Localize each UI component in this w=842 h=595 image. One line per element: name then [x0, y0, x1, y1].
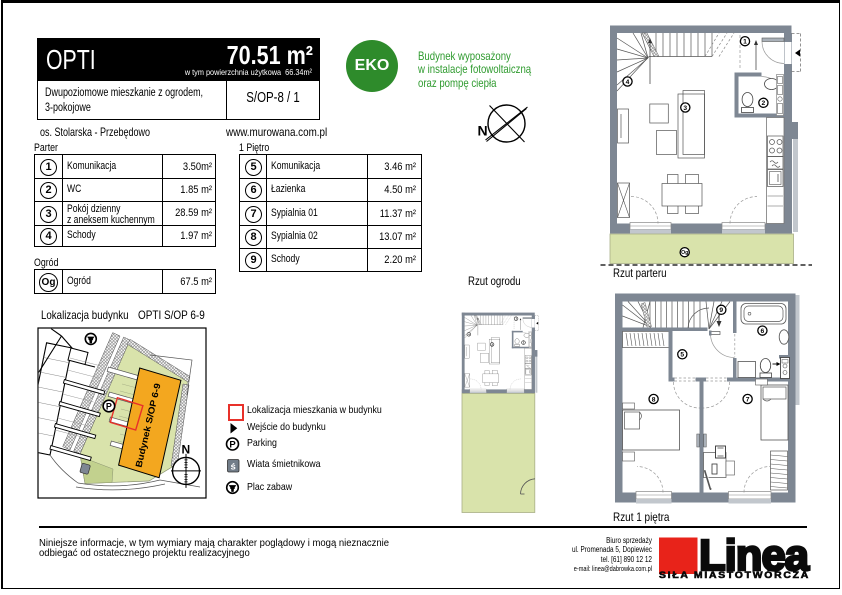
svg-text:9: 9: [719, 307, 723, 314]
svg-text:6: 6: [761, 328, 765, 335]
svg-text:8: 8: [652, 396, 656, 403]
svg-text:Og: Og: [681, 250, 688, 256]
svg-text:P: P: [106, 402, 112, 412]
svg-text:ś: ś: [231, 461, 236, 472]
svg-text:P: P: [229, 440, 236, 451]
svg-text:N: N: [182, 442, 191, 456]
svg-text:5: 5: [680, 352, 684, 359]
svg-text:SIŁA MIASTOTWÓRCZA: SIŁA MIASTOTWÓRCZA: [659, 569, 810, 581]
svg-text:N: N: [478, 123, 488, 139]
svg-text:7: 7: [746, 396, 750, 403]
